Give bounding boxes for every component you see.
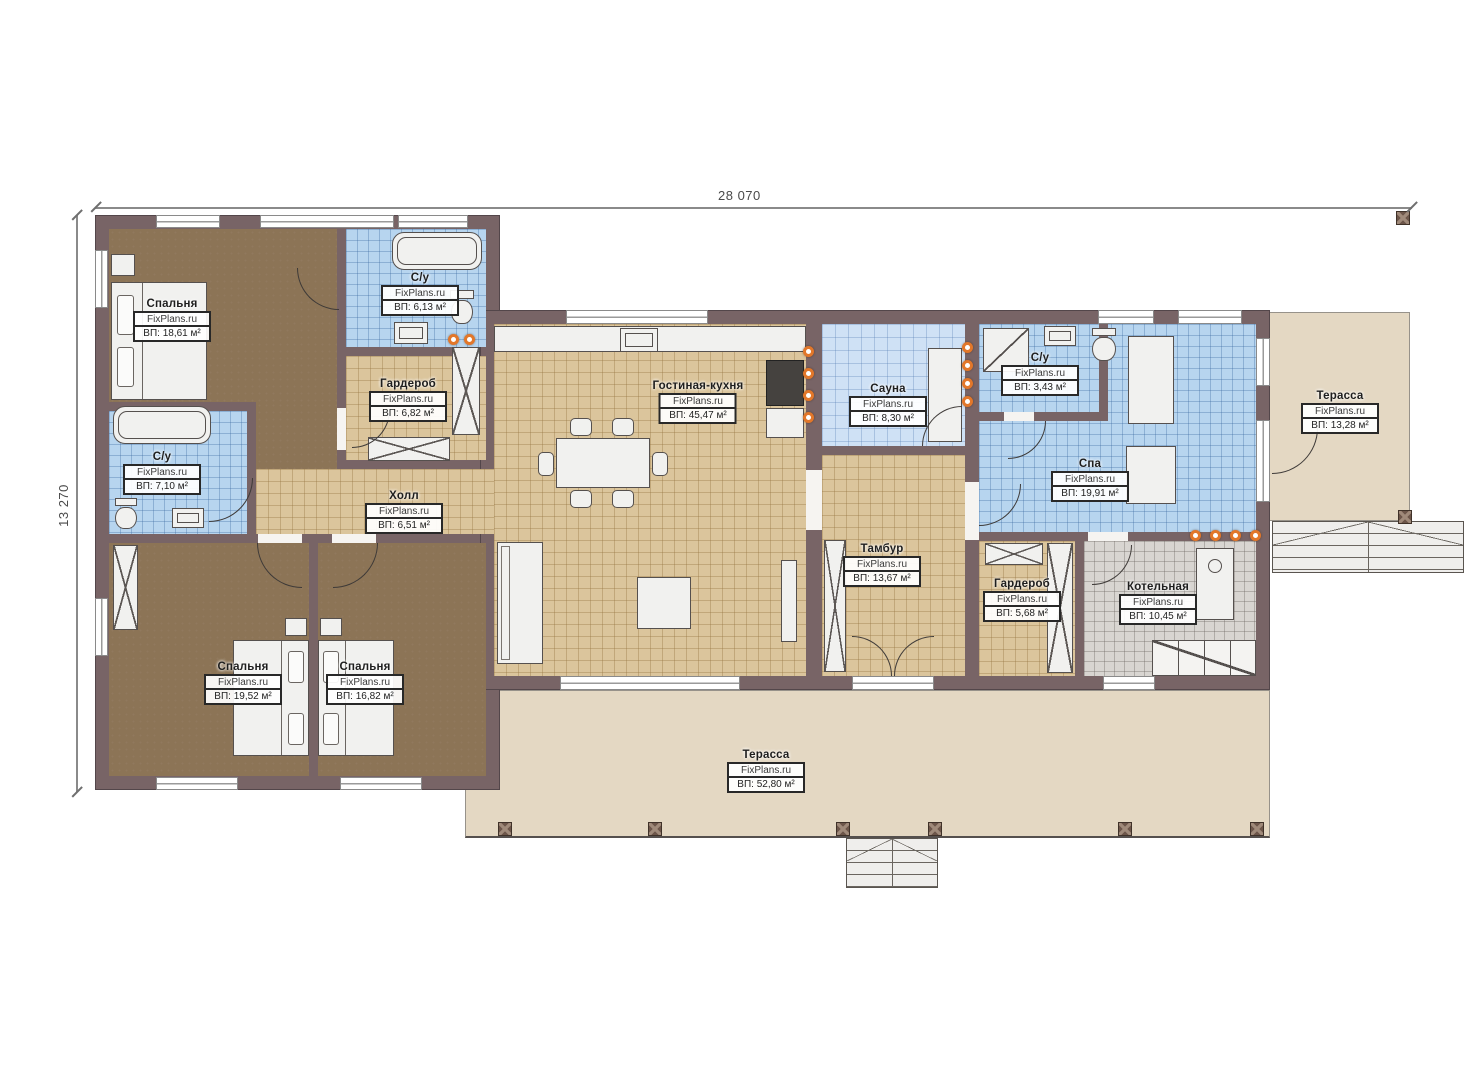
watermark: FixPlans.ru: [1053, 473, 1127, 487]
downlight-icon: [1250, 530, 1261, 541]
room-info-box: FixPlans.ru ВП: 52,80 м²: [727, 762, 805, 793]
room-name: С/у: [381, 272, 459, 284]
room-info-box: FixPlans.ru ВП: 5,68 м²: [983, 591, 1061, 622]
watermark: FixPlans.ru: [845, 558, 919, 572]
watermark: FixPlans.ru: [328, 676, 402, 690]
watermark: FixPlans.ru: [371, 393, 445, 407]
downlight-icon: [962, 396, 973, 407]
downlight-icon: [803, 368, 814, 379]
terrace-post: [928, 822, 942, 836]
terrace-post: [498, 822, 512, 836]
room-name: Спальня: [133, 298, 211, 310]
door-opening: [1088, 532, 1128, 541]
room-info-box: FixPlans.ru ВП: 6,51 м²: [365, 503, 443, 534]
door-opening: [332, 534, 376, 543]
terrace-post: [648, 822, 662, 836]
watermark: FixPlans.ru: [206, 676, 280, 690]
room-info-box: FixPlans.ru ВП: 6,13 м²: [381, 285, 459, 316]
room-label-tambour: Тамбур FixPlans.ru ВП: 13,67 м²: [843, 543, 921, 587]
watermark: FixPlans.ru: [851, 398, 925, 412]
boiler-stairs: [1152, 640, 1256, 676]
watermark: FixPlans.ru: [1303, 405, 1377, 419]
sink: [394, 322, 428, 344]
chair: [570, 490, 592, 508]
chair: [652, 452, 668, 476]
downlight-icon: [962, 342, 973, 353]
watermark: FixPlans.ru: [729, 764, 803, 778]
room-area: ВП: 10,45 м²: [1121, 610, 1195, 623]
chair: [538, 452, 554, 476]
dimension-left-label: 13 270: [56, 484, 71, 527]
room-area: ВП: 19,52 м²: [206, 690, 280, 703]
room-label-bedroom3: Спальня FixPlans.ru ВП: 16,82 м²: [326, 661, 404, 705]
wardrobe-cabinet: [113, 545, 138, 630]
room-area: ВП: 16,82 м²: [328, 690, 402, 703]
entrance-steps: [846, 838, 938, 888]
room-area: ВП: 6,13 м²: [383, 301, 457, 314]
room-area: ВП: 19,91 м²: [1053, 487, 1127, 500]
kitchen-sink: [620, 328, 658, 352]
room-info-box: FixPlans.ru ВП: 19,91 м²: [1051, 471, 1129, 502]
downlight-icon: [962, 360, 973, 371]
dining-table: [556, 438, 650, 488]
terrace-post: [1396, 211, 1410, 225]
door-opening: [965, 482, 979, 540]
door-opening: [258, 534, 302, 543]
room-info-box: FixPlans.ru ВП: 19,52 м²: [204, 674, 282, 705]
watermark: FixPlans.ru: [661, 395, 735, 409]
kitchen-appliance: [766, 408, 804, 438]
downlight-icon: [803, 412, 814, 423]
room-info-box: FixPlans.ru ВП: 18,61 м²: [133, 311, 211, 342]
terrace-post: [1118, 822, 1132, 836]
room-name: Спальня: [326, 661, 404, 673]
room-label-living-kitchen: Гостиная-кухня FixPlans.ru ВП: 45,47 м²: [653, 380, 744, 424]
door-opening: [337, 408, 346, 450]
room-name: Спальня: [204, 661, 282, 673]
dimension-line-top: [95, 207, 1412, 209]
room-name: Гостиная-кухня: [653, 380, 744, 392]
window: [156, 215, 220, 228]
partition-wall: [979, 412, 1107, 421]
nightstand: [320, 618, 342, 636]
room-label-bathroom3: С/у FixPlans.ru ВП: 3,43 м²: [1001, 352, 1079, 396]
wardrobe-cabinet: [452, 347, 480, 435]
watermark: FixPlans.ru: [1003, 367, 1077, 381]
room-area: ВП: 45,47 м²: [661, 409, 735, 422]
room-name: Гардероб: [983, 578, 1061, 590]
window: [156, 777, 238, 790]
window: [1178, 310, 1242, 324]
room-area: ВП: 6,51 м²: [367, 519, 441, 532]
watermark: FixPlans.ru: [125, 466, 199, 480]
downlight-icon: [448, 334, 459, 345]
room-area: ВП: 8,30 м²: [851, 412, 925, 425]
room-name: Сауна: [849, 383, 927, 395]
toilet-tank: [115, 498, 137, 506]
room-area: ВП: 5,68 м²: [985, 607, 1059, 620]
wardrobe-cabinet: [368, 437, 450, 461]
coffee-table: [637, 577, 691, 629]
terrace-sliding-door: [560, 676, 740, 690]
watermark: FixPlans.ru: [135, 313, 209, 327]
bathtub: [392, 232, 482, 270]
room-area: ВП: 3,43 м²: [1003, 381, 1077, 394]
wardrobe-cabinet: [985, 543, 1043, 565]
terrace-door-opening: [1256, 420, 1270, 502]
terrace-post: [1250, 822, 1264, 836]
sink: [172, 508, 204, 528]
boiler-exit-door: [1103, 676, 1155, 690]
room-info-box: FixPlans.ru ВП: 10,45 м²: [1119, 594, 1197, 625]
room-info-box: FixPlans.ru ВП: 16,82 м²: [326, 674, 404, 705]
terrace-bottom-floor: [465, 690, 1270, 838]
room-info-box: FixPlans.ru ВП: 8,30 м²: [849, 396, 927, 427]
floor-plan-canvas: { "dimensions": { "top": "28 070", "left…: [0, 0, 1473, 1080]
room-area: ВП: 13,28 м²: [1303, 419, 1377, 432]
room-bedroom1-floor: [256, 402, 337, 469]
room-name: Холл: [365, 490, 443, 502]
boiler-unit: [1196, 548, 1234, 620]
nightstand: [285, 618, 307, 636]
downlight-icon: [464, 334, 475, 345]
room-label-bedroom1: Спальня FixPlans.ru ВП: 18,61 м²: [133, 298, 211, 342]
room-label-bathroom1: С/у FixPlans.ru ВП: 6,13 м²: [381, 272, 459, 316]
window: [1098, 310, 1154, 324]
door-opening: [806, 470, 822, 530]
room-label-bathroom2: С/у FixPlans.ru ВП: 7,10 м²: [123, 451, 201, 495]
room-label-hall: Холл FixPlans.ru ВП: 6,51 м²: [365, 490, 443, 534]
room-label-wardrobe2: Гардероб FixPlans.ru ВП: 5,68 м²: [983, 578, 1061, 622]
room-info-box: FixPlans.ru ВП: 13,67 м²: [843, 556, 921, 587]
stove: [766, 360, 804, 406]
downlight-icon: [803, 346, 814, 357]
toilet-tank: [1092, 328, 1116, 336]
downlight-icon: [1210, 530, 1221, 541]
bathtub: [113, 406, 211, 444]
room-name: Гардероб: [369, 378, 447, 390]
room-info-box: FixPlans.ru ВП: 6,82 м²: [369, 391, 447, 422]
nightstand: [111, 254, 135, 276]
watermark: FixPlans.ru: [985, 593, 1059, 607]
room-area: ВП: 52,80 м²: [729, 778, 803, 791]
room-label-bedroom2: Спальня FixPlans.ru ВП: 19,52 м²: [204, 661, 282, 705]
window: [260, 215, 394, 228]
window: [95, 250, 108, 308]
window: [1256, 338, 1270, 386]
lounger: [1126, 446, 1176, 504]
room-area: ВП: 13,67 м²: [845, 572, 919, 585]
downlight-icon: [1190, 530, 1201, 541]
room-area: ВП: 7,10 м²: [125, 480, 199, 493]
room-name: Тамбур: [843, 543, 921, 555]
chair: [612, 418, 634, 436]
room-info-box: FixPlans.ru ВП: 13,28 м²: [1301, 403, 1379, 434]
sink: [1044, 326, 1076, 346]
door-opening: [1004, 412, 1034, 421]
window: [95, 598, 108, 656]
terrace-post: [836, 822, 850, 836]
room-label-spa: Спа FixPlans.ru ВП: 19,91 м²: [1051, 458, 1129, 502]
room-area: ВП: 6,82 м²: [371, 407, 445, 420]
room-label-sauna: Сауна FixPlans.ru ВП: 8,30 м²: [849, 383, 927, 427]
room-name: Котельная: [1119, 581, 1197, 593]
watermark: FixPlans.ru: [1121, 596, 1195, 610]
room-label-boiler: Котельная FixPlans.ru ВП: 10,45 м²: [1119, 581, 1197, 625]
tv-stand: [781, 560, 797, 642]
downlight-icon: [962, 378, 973, 389]
room-info-box: FixPlans.ru ВП: 3,43 м²: [1001, 365, 1079, 396]
lounger: [1128, 336, 1174, 424]
room-label-wardrobe1: Гардероб FixPlans.ru ВП: 6,82 м²: [369, 378, 447, 422]
room-name: Терасса: [1301, 390, 1379, 402]
toilet-bowl: [1092, 337, 1116, 361]
room-name: С/у: [123, 451, 201, 463]
entrance-door-opening: [852, 676, 934, 690]
sofa: [497, 542, 543, 664]
terrace-post: [1398, 510, 1412, 524]
terrace-right-steps: [1272, 521, 1464, 573]
room-label-terrace-bottom: Терасса FixPlans.ru ВП: 52,80 м²: [727, 749, 805, 793]
room-name: С/у: [1001, 352, 1079, 364]
watermark: FixPlans.ru: [383, 287, 457, 301]
room-label-terrace-right: Терасса FixPlans.ru ВП: 13,28 м²: [1301, 390, 1379, 434]
room-name: Спа: [1051, 458, 1129, 470]
downlight-icon: [803, 390, 814, 401]
room-info-box: FixPlans.ru ВП: 45,47 м²: [659, 393, 737, 424]
chair: [570, 418, 592, 436]
chair: [612, 490, 634, 508]
downlight-icon: [1230, 530, 1241, 541]
room-info-box: FixPlans.ru ВП: 7,10 м²: [123, 464, 201, 495]
window: [340, 777, 422, 790]
room-area: ВП: 18,61 м²: [135, 327, 209, 340]
toilet-bowl: [115, 507, 137, 529]
dimension-top-label: 28 070: [718, 188, 761, 203]
window: [398, 215, 468, 228]
watermark: FixPlans.ru: [367, 505, 441, 519]
window: [566, 310, 708, 324]
dimension-line-left: [76, 215, 78, 792]
room-name: Терасса: [727, 749, 805, 761]
